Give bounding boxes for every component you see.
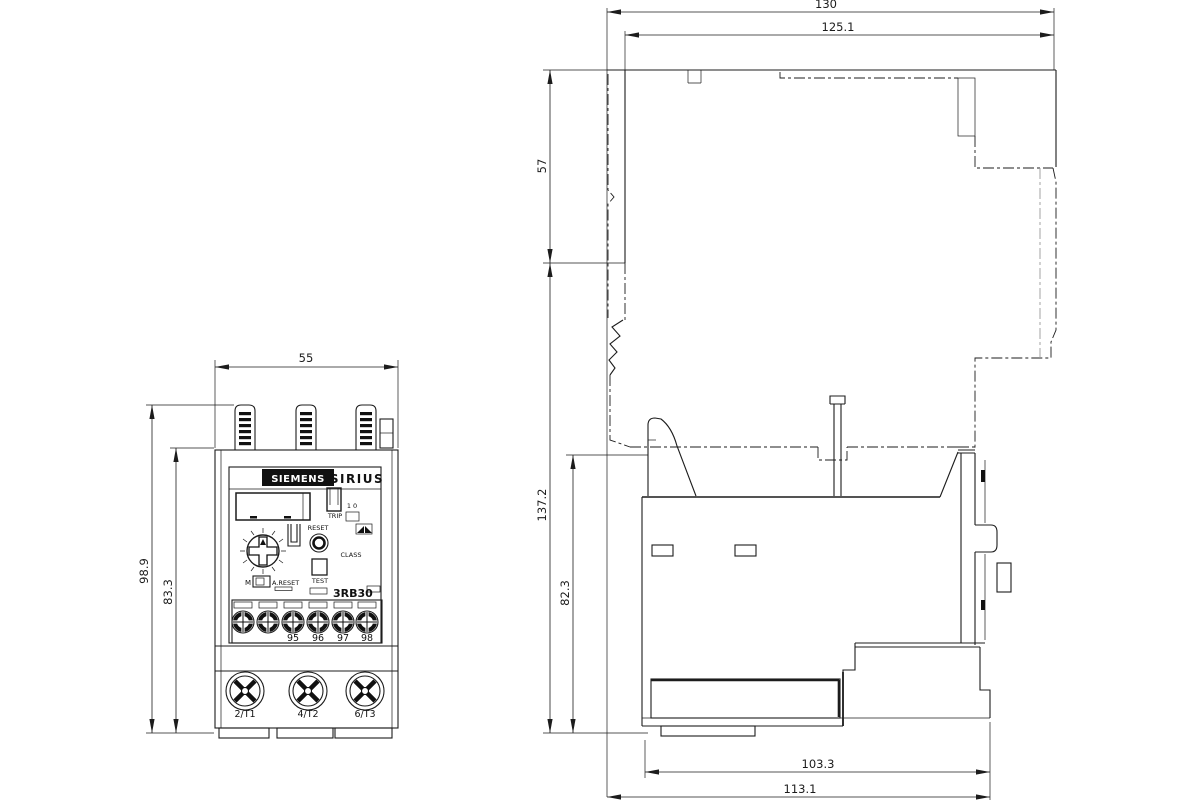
setting-window — [236, 493, 310, 520]
auto-reset-label: A.RESET — [272, 579, 299, 587]
mounting-feet — [219, 728, 392, 738]
main-screw[interactable] — [226, 672, 264, 710]
dim-side-depth-front: 125.1 — [625, 20, 1054, 70]
dim-label-83-3: 83.3 — [161, 579, 175, 605]
housing-band — [215, 646, 398, 671]
relay-top-hook — [648, 418, 696, 496]
trip-label: TRIP — [327, 512, 342, 520]
aux-screw[interactable] — [356, 611, 378, 633]
aux-terminal-strip: 95 96 97 98 — [232, 600, 382, 644]
front-view: 55 98.9 83.3 — [137, 351, 398, 738]
aux-screw[interactable] — [307, 611, 329, 633]
dim-label-82-3: 82.3 — [558, 580, 572, 606]
dim-side-depth-overall: 113.1 — [607, 782, 990, 797]
test-label: TEST — [311, 577, 328, 585]
dim-label-98-9: 98.9 — [137, 558, 151, 584]
main-screw[interactable] — [289, 672, 327, 710]
dim-side-height-upper: 57 — [535, 70, 625, 263]
trip-states-label: 1 0 — [347, 502, 357, 510]
dim-label-113-1: 113.1 — [784, 782, 817, 796]
dim-label-103-3: 103.3 — [802, 757, 835, 771]
mounting-clip-icon — [288, 524, 300, 546]
main-terminal-label: 2/T1 — [234, 709, 255, 720]
dim-side-height-relay: 82.3 — [558, 455, 648, 733]
marker-window — [310, 588, 327, 594]
aux-screw[interactable] — [257, 611, 279, 633]
current-adjustment-dial[interactable] — [240, 528, 286, 574]
side-latch-tab — [380, 419, 393, 448]
dim-label-137-2: 137.2 — [535, 489, 549, 522]
side-view: 130 125.1 57 137.2 82.3 103.3 — [535, 0, 1056, 800]
main-terminal-section: 2/T1 4/T2 6/T3 — [226, 672, 384, 720]
dim-front-height-total: 98.9 — [137, 405, 234, 733]
reset-mode-selector[interactable]: M A.RESET — [245, 576, 299, 591]
pin-terminal — [235, 405, 255, 450]
main-terminal-label: 4/T2 — [297, 709, 318, 720]
aux-terminal-label: 95 — [287, 633, 299, 644]
dial-knob-side — [975, 525, 997, 552]
side-window — [652, 545, 673, 556]
brand-label: SIEMENS — [271, 474, 325, 485]
contactor-outline-phantom — [607, 70, 1056, 460]
side-latch — [997, 563, 1011, 592]
aux-terminal-label: 96 — [312, 633, 324, 644]
dim-side-height-total: 137.2 — [535, 263, 648, 733]
aux-terminal-label: 98 — [361, 633, 373, 644]
dim-label-55: 55 — [299, 351, 314, 365]
dim-label-57: 57 — [535, 159, 549, 174]
trip-indicator: TRIP 1 0 — [327, 488, 359, 521]
actuating-pin — [830, 396, 845, 496]
manual-label: M — [245, 579, 251, 587]
relay-housing — [215, 405, 398, 728]
pin-terminal — [296, 405, 316, 450]
terminal-cavity — [651, 679, 840, 718]
aux-screw[interactable] — [232, 611, 254, 633]
technical-drawing: 55 98.9 83.3 — [0, 0, 1200, 800]
side-window — [735, 545, 756, 556]
relay-foot — [661, 726, 755, 736]
dim-front-height-body: 83.3 — [161, 448, 214, 733]
face-plate: SIEMENS SIRIUS TRIP 1 0 RESET — [229, 467, 384, 644]
reset-button[interactable]: RESET — [308, 524, 329, 552]
dim-label-130: 130 — [815, 0, 837, 11]
remote-reset-icon — [356, 524, 372, 534]
class-label: CLASS — [340, 551, 361, 559]
pin-terminal — [356, 405, 376, 450]
dim-label-125-1: 125.1 — [822, 20, 855, 34]
test-button[interactable]: TEST — [311, 559, 328, 585]
aux-screw[interactable] — [332, 611, 354, 633]
din-rail-hooks — [609, 320, 623, 375]
dim-side-depth-body: 103.3 — [645, 722, 990, 800]
main-terminal-label: 6/T3 — [354, 709, 375, 720]
aux-screw[interactable] — [282, 611, 304, 633]
aux-terminal-label: 97 — [337, 633, 349, 644]
dim-front-width: 55 — [215, 351, 398, 448]
main-screw[interactable] — [346, 672, 384, 710]
series-label: SIRIUS — [330, 472, 384, 486]
reset-label: RESET — [308, 524, 329, 532]
